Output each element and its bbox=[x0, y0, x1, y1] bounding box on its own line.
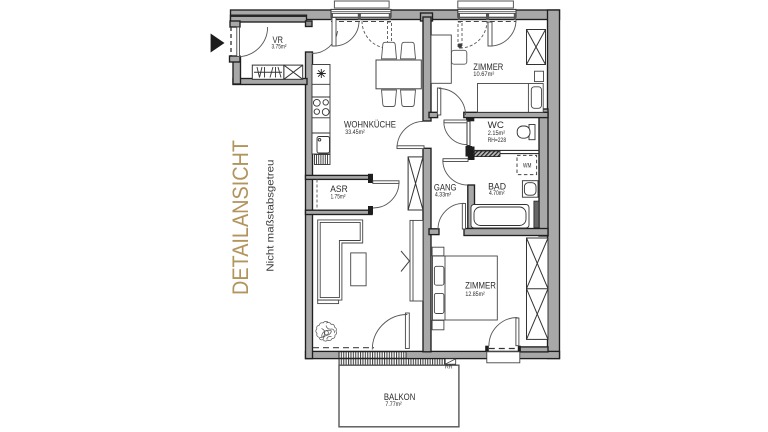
svg-text:3.75m²: 3.75m² bbox=[272, 45, 287, 51]
svg-text:GANG: GANG bbox=[434, 182, 457, 192]
svg-text:ZIMMER: ZIMMER bbox=[473, 62, 503, 72]
svg-text:WC: WC bbox=[488, 120, 505, 130]
svg-text:DETAILANSICHT: DETAILANSICHT bbox=[228, 140, 253, 295]
svg-text:VR: VR bbox=[273, 35, 284, 45]
svg-text:BALKON: BALKON bbox=[384, 392, 415, 402]
svg-text:4.33m²: 4.33m² bbox=[435, 192, 451, 198]
svg-text:RR: RR bbox=[445, 365, 453, 371]
svg-text:1.75m²: 1.75m² bbox=[331, 194, 346, 200]
svg-text:7.77m²: 7.77m² bbox=[385, 402, 401, 408]
svg-text:WOHNKÜCHE: WOHNKÜCHE bbox=[344, 119, 396, 129]
svg-text:WM: WM bbox=[523, 163, 531, 169]
svg-text:ASR: ASR bbox=[330, 184, 348, 194]
svg-text:33.45m²: 33.45m² bbox=[345, 130, 365, 136]
svg-text:Nicht maßstabsgetreu: Nicht maßstabsgetreu bbox=[265, 159, 277, 271]
svg-text:10.67m²: 10.67m² bbox=[473, 72, 494, 78]
svg-text:2.15m²: 2.15m² bbox=[488, 131, 505, 137]
svg-text:12.85m²: 12.85m² bbox=[465, 292, 484, 298]
svg-text:4.70m²: 4.70m² bbox=[489, 191, 505, 197]
svg-text:RH=228: RH=228 bbox=[488, 138, 507, 144]
svg-text:ZIMMER: ZIMMER bbox=[465, 280, 496, 290]
